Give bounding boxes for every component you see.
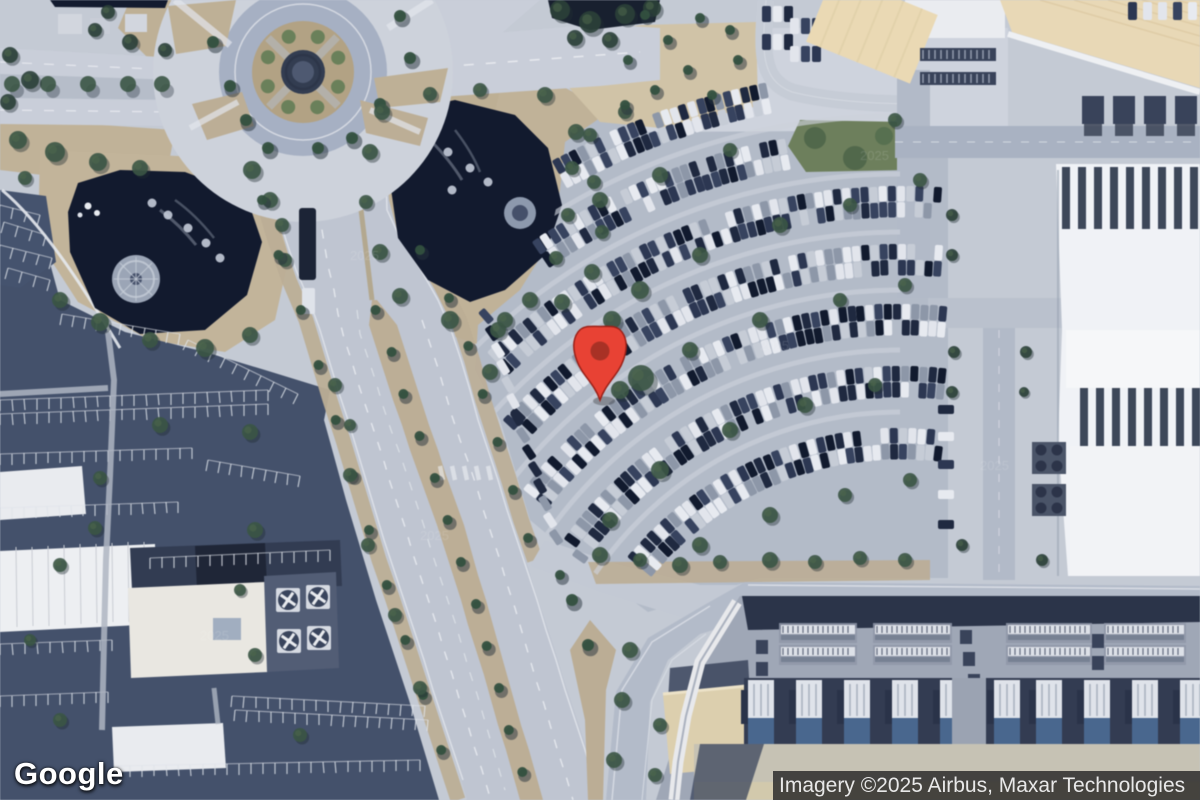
svg-text:2025: 2025 — [760, 338, 789, 353]
svg-text:2025: 2025 — [420, 528, 449, 543]
svg-text:2025: 2025 — [980, 458, 1009, 473]
svg-text:2025: 2025 — [860, 148, 889, 163]
svg-text:2025: 2025 — [200, 628, 229, 643]
svg-text:2025: 2025 — [350, 248, 379, 263]
